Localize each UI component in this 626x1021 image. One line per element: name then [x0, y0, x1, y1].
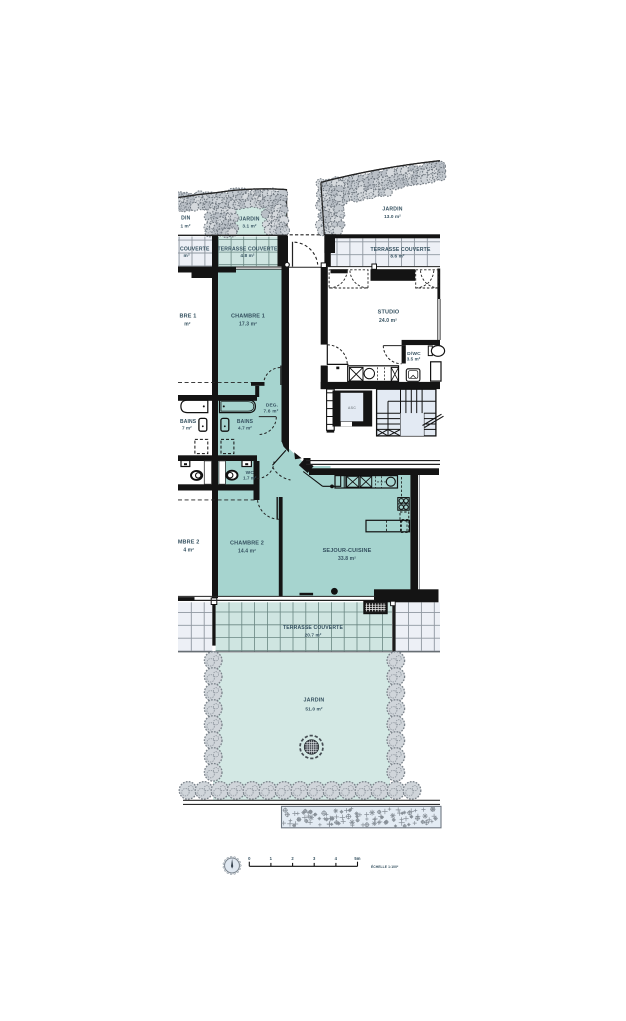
- svg-text:14.4 m²: 14.4 m²: [238, 548, 256, 554]
- svg-text:CHAMBRE 2: CHAMBRE 2: [230, 540, 264, 546]
- svg-text:5m: 5m: [354, 856, 360, 861]
- svg-text:4 m²: 4 m²: [183, 548, 194, 554]
- svg-text:DIN: DIN: [181, 216, 190, 222]
- svg-text:BAINS: BAINS: [237, 419, 254, 425]
- svg-text:m²: m²: [184, 253, 191, 259]
- svg-text:17.3 m²: 17.3 m²: [239, 322, 257, 328]
- svg-text:m²: m²: [184, 322, 191, 328]
- svg-text:JARDIN: JARDIN: [304, 698, 325, 704]
- svg-text:BRE 1: BRE 1: [180, 314, 197, 320]
- svg-text:7 m²: 7 m²: [182, 425, 192, 430]
- svg-text:TERRASSE COUVERTE: TERRASSE COUVERTE: [283, 625, 343, 631]
- svg-text:TERRASSE COUVERTE: TERRASSE COUVERTE: [217, 246, 277, 252]
- svg-text:CHAMBRE 1: CHAMBRE 1: [231, 314, 265, 320]
- svg-text:SEJOUR-CUISINE: SEJOUR-CUISINE: [323, 548, 372, 554]
- svg-text:JARDIN: JARDIN: [239, 217, 259, 223]
- svg-text:7.6 m²: 7.6 m²: [263, 408, 278, 413]
- svg-text:4.7 m²: 4.7 m²: [238, 425, 252, 430]
- svg-text:20.7 m²: 20.7 m²: [305, 633, 322, 638]
- svg-text:24.0 m²: 24.0 m²: [379, 318, 397, 324]
- svg-text:8.6 m²: 8.6 m²: [390, 254, 404, 259]
- svg-text:51.0 m²: 51.0 m²: [305, 706, 323, 712]
- svg-text:33.8 m²: 33.8 m²: [338, 556, 356, 562]
- svg-text:ASC: ASC: [348, 406, 356, 410]
- svg-text:1 m²: 1 m²: [180, 224, 190, 229]
- svg-text:13.0 m²: 13.0 m²: [384, 214, 401, 219]
- svg-text:COUVERTE: COUVERTE: [180, 246, 210, 252]
- svg-text:TERRASSE COUVERTE: TERRASSE COUVERTE: [370, 247, 430, 253]
- svg-text:3.5 m²: 3.5 m²: [407, 356, 421, 361]
- svg-text:JARDIN: JARDIN: [382, 207, 402, 213]
- svg-text:BAINS: BAINS: [180, 419, 197, 425]
- svg-text:MBRE 2: MBRE 2: [178, 540, 200, 546]
- svg-text:1.7 m²: 1.7 m²: [243, 476, 257, 481]
- svg-text:4.8 m²: 4.8 m²: [240, 253, 254, 258]
- svg-text:ÉCHELLE 1:100*: ÉCHELLE 1:100*: [371, 864, 399, 869]
- svg-text:3.1 m²: 3.1 m²: [242, 224, 256, 229]
- svg-text:STUDIO: STUDIO: [378, 310, 400, 316]
